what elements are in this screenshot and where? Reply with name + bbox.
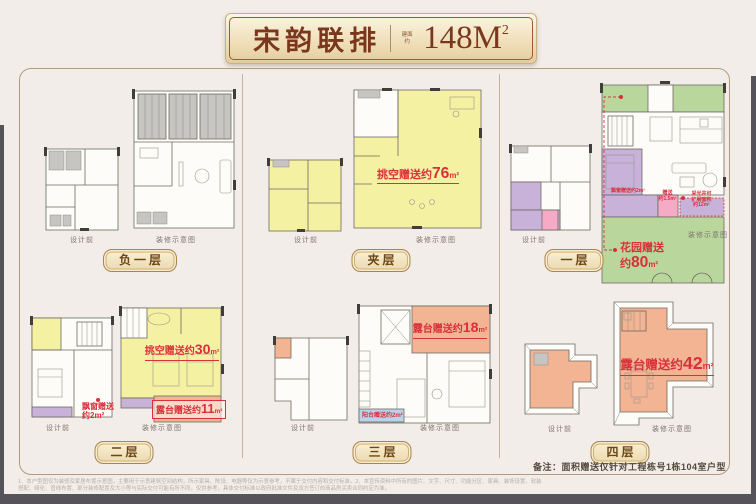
annotation-void-30: 挑空赠送约30m² bbox=[136, 343, 228, 361]
floor-badge-mezzanine: 夹层 bbox=[351, 249, 410, 272]
caption-design-before: 设计前 bbox=[46, 423, 70, 433]
caption-design-before: 设计前 bbox=[294, 235, 318, 245]
area-value: 148M2 bbox=[423, 22, 509, 55]
title-plaque: 宋韵联排 建面约 148M2 bbox=[225, 13, 537, 64]
title-plaque-inner: 宋韵联排 建面约 148M2 bbox=[229, 17, 533, 60]
annotation-terrace-18: 露台赠送约18m² bbox=[400, 321, 500, 339]
disclaimer-line-1: 1、本户型图仅为装修及家居布置示意图，主要用于示意建筑空间结构，所示家具、陈设、… bbox=[18, 479, 742, 486]
floorplan-basement-after bbox=[132, 84, 236, 232]
caption-reno-diagram: 装修示意图 bbox=[420, 423, 460, 433]
annotation-terrace-42: 露台赠送约42m² bbox=[612, 354, 722, 376]
annotation-bay-window-f1: 飘窗赠送约2m² bbox=[611, 189, 645, 195]
page-title: 宋韵联排 bbox=[253, 19, 381, 58]
floorplan-mezzanine-before bbox=[267, 149, 343, 233]
annotation-gift-1-5: 赠送约1.5m² bbox=[657, 191, 678, 202]
annotation-lightwell: 采光井可 扩展面积 约12m² bbox=[679, 192, 724, 209]
caption-reno-diagram: 装修示意图 bbox=[416, 235, 456, 245]
footer-note: 备注：面积赠送仅针对工程栋号1栋104室户型 bbox=[533, 460, 726, 473]
area-number: 148M bbox=[423, 20, 502, 56]
floor-badge-third: 三层 bbox=[352, 441, 411, 464]
page-edge-right bbox=[751, 76, 756, 504]
caption-design-before: 设计前 bbox=[522, 235, 546, 245]
page-edge-left bbox=[0, 125, 4, 504]
annotation-garden-80: 花园赠送 约80m² bbox=[620, 242, 664, 271]
caption-design-before: 设计前 bbox=[548, 424, 572, 434]
caption-design-before: 设计前 bbox=[70, 235, 94, 245]
caption-reno-diagram: 装修示意图 bbox=[688, 230, 728, 240]
brochure-page: 宋韵联排 建面约 148M2 设计前 装修示意图 负一层 bbox=[0, 0, 756, 504]
column-separator-2 bbox=[499, 74, 500, 458]
floorplan-first-before bbox=[509, 139, 592, 233]
annotation-balcony-2: 阳台赠送约2m² bbox=[362, 413, 403, 420]
annotation-terrace-11: 露台赠送约11m² bbox=[152, 400, 226, 419]
floor-badge-first: 一层 bbox=[544, 249, 603, 272]
title-divider bbox=[390, 25, 391, 52]
caption-reno-diagram: 装修示意图 bbox=[156, 235, 196, 245]
floorplan-mezzanine-after bbox=[352, 84, 483, 232]
garden-leader-line bbox=[596, 90, 636, 260]
area-superscript: 2 bbox=[502, 23, 509, 38]
caption-reno-diagram: 装修示意图 bbox=[142, 423, 182, 433]
annotation-bay-window-f2: 飘窗赠送 约2m² bbox=[82, 403, 114, 421]
floorplan-basement-before bbox=[44, 140, 120, 233]
disclaimer-line-2: 搭配、绿化、管线布置、部分装修配置及大小等与实际交付可能有所不同，仅供参考，具体… bbox=[18, 486, 742, 493]
annotation-void-76: 挑空赠送约76m² bbox=[356, 165, 480, 184]
floorplan-third-before bbox=[269, 329, 353, 428]
area-seal-label: 建面约 bbox=[400, 32, 414, 45]
floor-badge-basement: 负一层 bbox=[103, 249, 177, 272]
floorplan-fourth-before bbox=[517, 334, 603, 424]
page-edge-bottom bbox=[0, 494, 756, 504]
floor-badge-second: 二层 bbox=[94, 441, 153, 464]
column-separator-1 bbox=[242, 74, 243, 458]
floorplan-third-after bbox=[357, 299, 495, 430]
caption-reno-diagram: 装修示意图 bbox=[652, 424, 692, 434]
caption-design-before: 设计前 bbox=[291, 423, 315, 433]
